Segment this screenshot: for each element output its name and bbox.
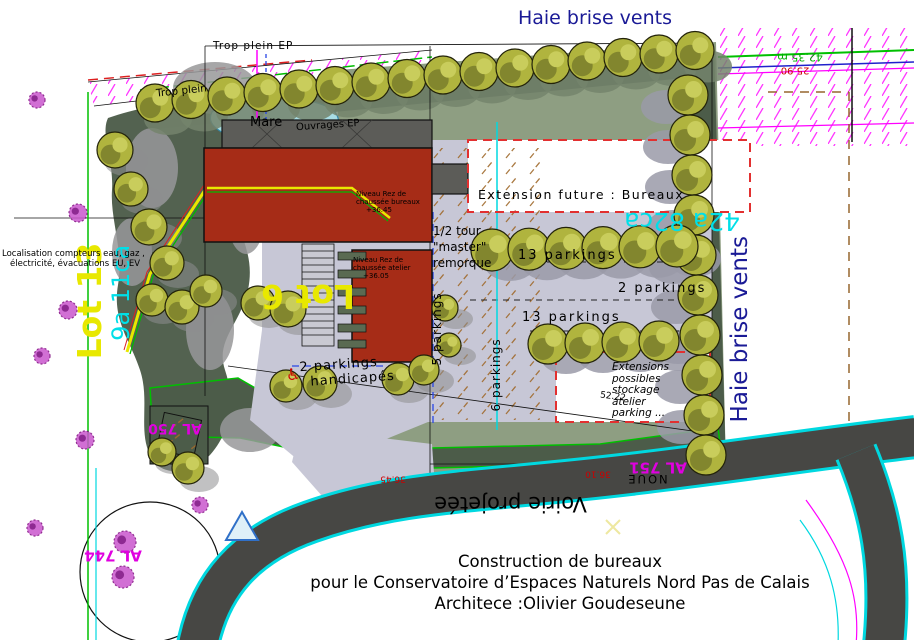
tree-icon: [388, 60, 426, 98]
parkings-row3-label: 13 parkings: [522, 311, 621, 326]
parkings-row2-label: 2 parkings: [618, 282, 706, 297]
title-line3: Architece :Olivier Goudeseune: [255, 593, 865, 614]
hedge-right-label: Haie brise vents: [727, 199, 753, 459]
tree-icon: [97, 132, 133, 168]
road-label: Voirie projetée: [408, 492, 613, 516]
bush-icon: [112, 566, 134, 588]
tree-icon: [460, 53, 498, 91]
dim-25-90: 25.90: [765, 64, 825, 76]
bush-icon: [192, 497, 208, 513]
level-bureaux-2: chaussée bureaux: [356, 198, 420, 206]
title-line2: pour le Conservatoire d’Espaces Naturels…: [255, 572, 865, 593]
parcel-al751-label: AL 751: [622, 458, 694, 475]
tree-icon: [208, 77, 246, 115]
tree-icon: [680, 315, 720, 355]
tree-icon: [172, 452, 204, 484]
bush-icon: [76, 431, 94, 449]
half-turn-label: 1/2 tour "master" remorque: [433, 223, 491, 271]
tree-icon: [568, 42, 606, 80]
tree-icon: [244, 74, 282, 112]
title-block: Construction de bureaux pour le Conserva…: [255, 551, 865, 614]
parkings-south-label: 6 parkings: [490, 325, 504, 425]
tree-icon: [532, 46, 570, 84]
level-atelier-3: +36.05: [353, 272, 411, 280]
utilities-line1: Localisation compteurs eau, gaz ,: [2, 249, 145, 259]
site-plan-drawing: [0, 0, 914, 640]
lot-west-label: Lot 13: [71, 196, 109, 406]
extensions-possibles-label: Extensions possibles stockage atelier pa…: [612, 362, 669, 420]
ext-line5: parking ...: [612, 408, 669, 420]
tree-icon: [565, 323, 605, 363]
parkings-row1-label: 13 parkings: [518, 249, 617, 264]
tree-icon: [148, 438, 176, 466]
hedge-top-label: Haie brise vents: [505, 8, 685, 30]
tree-icon: [280, 70, 318, 108]
level-atelier-label: Niveau Rez de chaussée atelier +36.05: [353, 256, 411, 280]
bush-icon: [34, 348, 50, 364]
tree-icon: [684, 395, 724, 435]
tree-icon: [604, 39, 642, 77]
tree-icon: [150, 246, 184, 280]
tree-icon: [602, 322, 642, 362]
tree-icon: [676, 32, 714, 70]
title-line1: Construction de bureaux: [255, 551, 865, 572]
half-turn-line1: 1/2 tour: [433, 223, 491, 239]
level-36-45: 36.45: [370, 473, 416, 483]
bush-icon: [29, 92, 45, 108]
bush-icon: [27, 520, 43, 536]
site-plan-page: Haie brise vents Haie brise vents Extens…: [0, 0, 914, 640]
tree-icon: [670, 115, 710, 155]
area-east-label: 42a 82ca: [582, 206, 782, 235]
ext-line1: Extensions: [612, 362, 669, 374]
half-turn-line2: "master": [433, 239, 491, 255]
level-atelier-2: chaussée atelier: [353, 264, 411, 272]
area-west-label: 9a 11ca: [108, 193, 136, 393]
level-bureaux-3: +36.45: [356, 206, 420, 214]
level-bureaux-1: Niveau Rez de: [356, 190, 420, 198]
tree-icon: [190, 275, 222, 307]
building-annex: [432, 164, 468, 194]
tree-icon: [136, 284, 168, 316]
parcel-al744-label: AL 744: [78, 546, 148, 563]
tree-icon: [424, 56, 462, 94]
level-atelier-1: Niveau Rez de: [353, 256, 411, 264]
mare-label: Mare: [250, 116, 282, 131]
tree-icon: [131, 209, 167, 245]
parcel-al750-label: AL 750: [140, 420, 210, 436]
dim-boundary-east: 42.35 m: [760, 50, 840, 63]
extension-future-label: Extension future : Bureaux: [478, 188, 684, 202]
half-turn-line3: remorque: [433, 255, 491, 271]
lot-center-label: Lot 6: [233, 277, 383, 315]
utilities-line2: électricité, évacuations EU, EV: [2, 259, 145, 269]
tree-icon: [682, 355, 722, 395]
tree-icon: [496, 49, 534, 87]
tree-icon: [352, 63, 390, 101]
parkings-west-label: 5 parkings: [431, 279, 445, 379]
tree-icon: [639, 321, 679, 361]
trop-plein-ep-label: Trop plein EP: [213, 40, 293, 52]
tree-icon: [528, 324, 568, 364]
tree-icon: [640, 35, 678, 73]
tree-icon: [668, 75, 708, 115]
wheelchair-icon: ♿: [286, 366, 300, 384]
utilities-label: Localisation compteurs eau, gaz , électr…: [2, 249, 145, 269]
tree-icon: [316, 67, 354, 105]
level-36-10: 36.10: [575, 468, 621, 478]
level-bureaux-label: Niveau Rez de chaussée bureaux +36.45: [356, 190, 420, 214]
